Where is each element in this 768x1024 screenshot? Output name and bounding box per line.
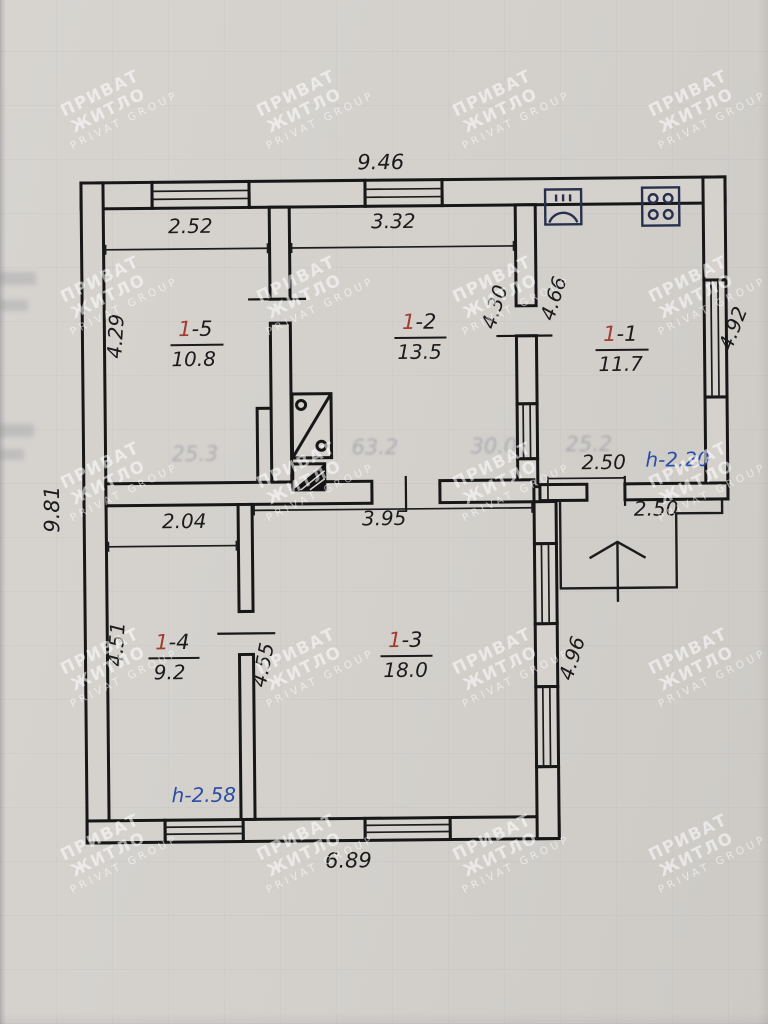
- window-room13-right-upper: [534, 544, 557, 624]
- room-label-1-3: 1-3 18.0: [380, 628, 433, 682]
- svg-text:10.8: 10.8: [171, 347, 216, 371]
- wall-segment: [537, 766, 560, 838]
- bleed-through-smudge: [0, 272, 36, 285]
- wall-segment: [440, 480, 534, 503]
- door-room15-room12: [248, 299, 306, 300]
- svg-text:1-4: 1-4: [155, 630, 190, 654]
- wall-segment: [249, 180, 365, 207]
- door-room12-kitchen: [496, 336, 552, 337]
- dim-room13-width: 3.95: [362, 506, 407, 530]
- room-label-1-5: 1-5 10.8: [170, 317, 224, 372]
- svg-text:9.2: 9.2: [154, 660, 186, 684]
- dim-room13-left: 4.55: [247, 641, 279, 689]
- bleed-through-smudge: [0, 300, 28, 311]
- furnace-icon: [292, 394, 332, 490]
- wall-segment: [534, 502, 556, 544]
- wall-segment: [243, 818, 365, 841]
- dim-room15-depth: 4.29: [102, 313, 129, 359]
- door-room14-room13: [217, 633, 275, 634]
- dim-room14-width: 2.04: [162, 509, 207, 533]
- room-label-1-2: 1-2 13.5: [394, 310, 447, 364]
- bleed-through-number: 25.3: [171, 442, 218, 466]
- wall-segment: [238, 504, 253, 611]
- dim-room13-right: 4.96: [554, 633, 590, 683]
- wall-notch: [257, 408, 272, 482]
- ceiling-height-rooms: h-2.58: [171, 783, 236, 808]
- dim-bottom-width: 6.89: [325, 848, 372, 872]
- svg-text:1-2: 1-2: [402, 310, 437, 334]
- svg-text:11.7: 11.7: [598, 352, 643, 376]
- dim-room15-width: 2.52: [168, 214, 213, 238]
- wall-segment: [81, 183, 109, 843]
- wall-segment: [87, 820, 165, 843]
- svg-text:18.0: 18.0: [383, 658, 428, 682]
- bleed-through-smudge: [0, 424, 34, 437]
- wall-segment: [540, 484, 587, 500]
- bleed-through-number: 25.2: [565, 432, 612, 456]
- window-room13-bottom: [365, 818, 450, 841]
- ceiling-height-kitchen: h-2.20: [645, 447, 710, 472]
- dim-left-height: 9.81: [40, 486, 64, 533]
- floor-plan-svg: 9.46 2.52 3.32 4.30 4.66 4.92 9.81 4.29 …: [0, 0, 768, 1024]
- dim-room14-depth: 4.51: [103, 621, 130, 667]
- room-label-1-4: 1-4 9.2: [148, 630, 200, 684]
- floor-plan-drawing: 9.46 2.52 3.32 4.30 4.66 4.92 9.81 4.29 …: [0, 0, 768, 1024]
- dim-room12-depth: 4.30: [476, 282, 512, 332]
- window-room14-bottom: [165, 820, 243, 843]
- dimension-labels: 9.46 2.52 3.32 4.30 4.66 4.92 9.81 4.29 …: [37, 147, 758, 876]
- dim-room12-width: 3.32: [371, 209, 416, 233]
- bleed-through-smudge: [0, 449, 24, 460]
- scanned-floor-plan-page: 9.46 2.52 3.32 4.30 4.66 4.92 9.81 4.29 …: [0, 0, 768, 1024]
- svg-text:1-1: 1-1: [603, 322, 638, 346]
- wall-segment: [516, 336, 537, 404]
- wall-segment: [106, 481, 372, 506]
- window-wall-1-2-kitchen: [517, 404, 538, 459]
- svg-text:13.5: 13.5: [397, 340, 442, 364]
- wall-segment: [270, 323, 292, 482]
- wall-segment: [703, 177, 726, 280]
- window-room12-top: [365, 180, 442, 207]
- window-room15-top: [152, 181, 249, 208]
- dim-porch-width: 2.50: [634, 496, 679, 520]
- wall-segment: [269, 207, 290, 299]
- svg-text:1-3: 1-3: [388, 628, 423, 652]
- wall-segment: [442, 177, 725, 206]
- svg-text:1-5: 1-5: [178, 317, 213, 341]
- window-room13-right-lower: [536, 686, 559, 766]
- room-label-1-1: 1-1 11.7: [595, 322, 649, 377]
- dim-top-width: 9.46: [357, 150, 404, 174]
- wall-segment: [515, 205, 536, 306]
- wall-segment: [535, 623, 558, 686]
- bleed-through-number: 30.0: [470, 434, 517, 458]
- dim-kitchen-left: 4.66: [535, 274, 571, 324]
- entrance-arrow: [589, 542, 646, 603]
- bleed-through-number: 63.2: [351, 435, 398, 459]
